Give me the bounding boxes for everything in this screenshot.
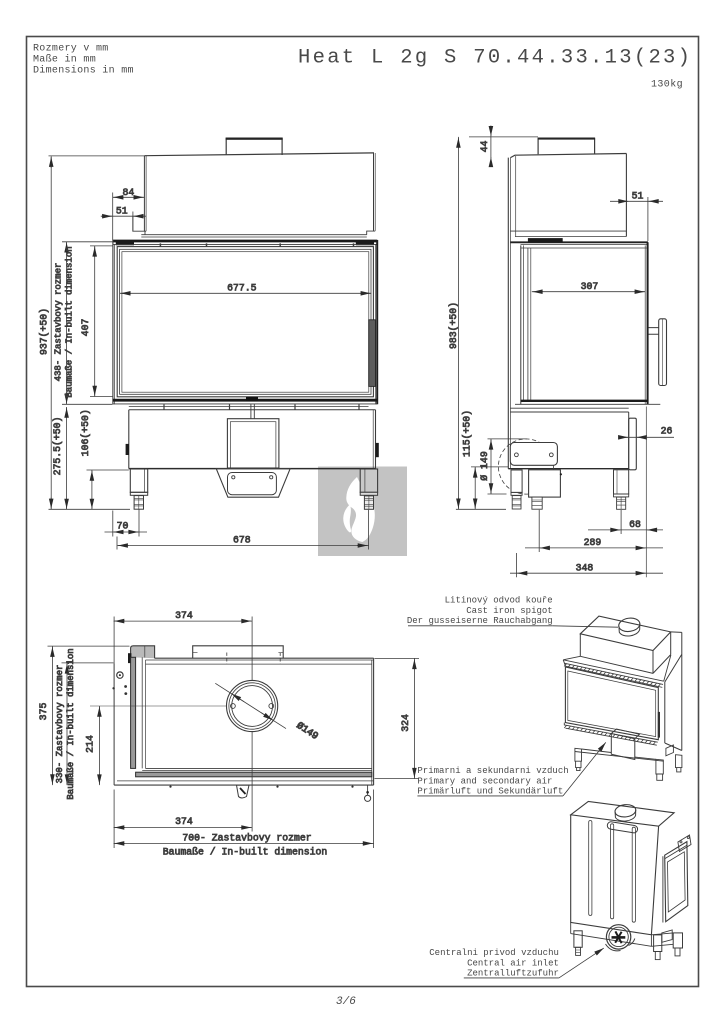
svg-text:289: 289 [584,537,602,548]
svg-text:Rozmery v mm: Rozmery v mm [33,44,109,55]
svg-text:374: 374 [175,816,193,827]
svg-text:214: 214 [85,735,96,753]
svg-text:374: 374 [175,610,193,621]
svg-text:407: 407 [80,319,91,337]
svg-text:51: 51 [116,206,128,217]
svg-text:Baumaße / In-built dimension: Baumaße / In-built dimension [65,246,75,397]
svg-text:Zentralluftzufuhr: Zentralluftzufuhr [467,969,559,979]
svg-text:Baumaße / In-built dimension: Baumaße / In-built dimension [66,648,76,799]
svg-text:Dimensions in mm: Dimensions in mm [33,65,134,77]
svg-text:677.5: 677.5 [227,282,257,293]
svg-text:115(+50): 115(+50) [462,410,473,457]
svg-text:937(+50): 937(+50) [39,308,50,355]
svg-text:Primary and secondary air: Primary and secondary air [417,776,552,786]
svg-text:330- Zastavbovy rozmer: 330- Zastavbovy rozmer [55,665,65,784]
svg-text:324: 324 [400,714,411,732]
svg-text:70: 70 [117,521,129,532]
svg-text:84: 84 [123,187,135,198]
svg-text:678: 678 [233,535,251,546]
svg-text:Der gusseiserne Rauchabgang: Der gusseiserne Rauchabgang [407,616,553,626]
svg-text:Primärluft und Sekundärluft: Primärluft und Sekundärluft [417,787,563,797]
svg-text:Cast iron spigot: Cast iron spigot [466,606,552,616]
svg-text:Litinový odvod kouře: Litinový odvod kouře [445,596,553,606]
svg-text:375: 375 [38,703,49,721]
svg-text:68: 68 [629,519,641,530]
svg-text:Maße in mm: Maße in mm [33,54,96,66]
svg-text:Centralni privod vzduchu: Centralni privod vzduchu [429,948,559,958]
svg-text:348: 348 [576,562,594,573]
svg-text:307: 307 [581,281,599,292]
svg-text:275.5(+50): 275.5(+50) [52,417,63,476]
svg-text:Baumaße / In-built dimension: Baumaße / In-built dimension [163,846,328,857]
svg-text:106(+50): 106(+50) [80,409,91,456]
svg-text:130kg: 130kg [651,79,683,91]
svg-text:Ø 149: Ø 149 [479,451,490,481]
svg-text:Primarni a sekundarni vzduch: Primarni a sekundarni vzduch [417,766,568,776]
svg-text:51: 51 [632,190,644,201]
svg-text:438- Zastavbovy rozmer: 438- Zastavbovy rozmer [54,263,64,382]
svg-text:983(+50): 983(+50) [448,302,459,349]
svg-text:Central air inlet: Central air inlet [467,958,559,968]
svg-text:700- Zastavbovy rozmer: 700- Zastavbovy rozmer [182,832,311,843]
svg-text:3/6: 3/6 [336,996,356,1008]
svg-text:Heat L 2g S 70.44.33.13(23): Heat L 2g S 70.44.33.13(23) [298,47,692,70]
svg-text:26: 26 [661,426,673,437]
svg-text:44: 44 [479,141,490,153]
